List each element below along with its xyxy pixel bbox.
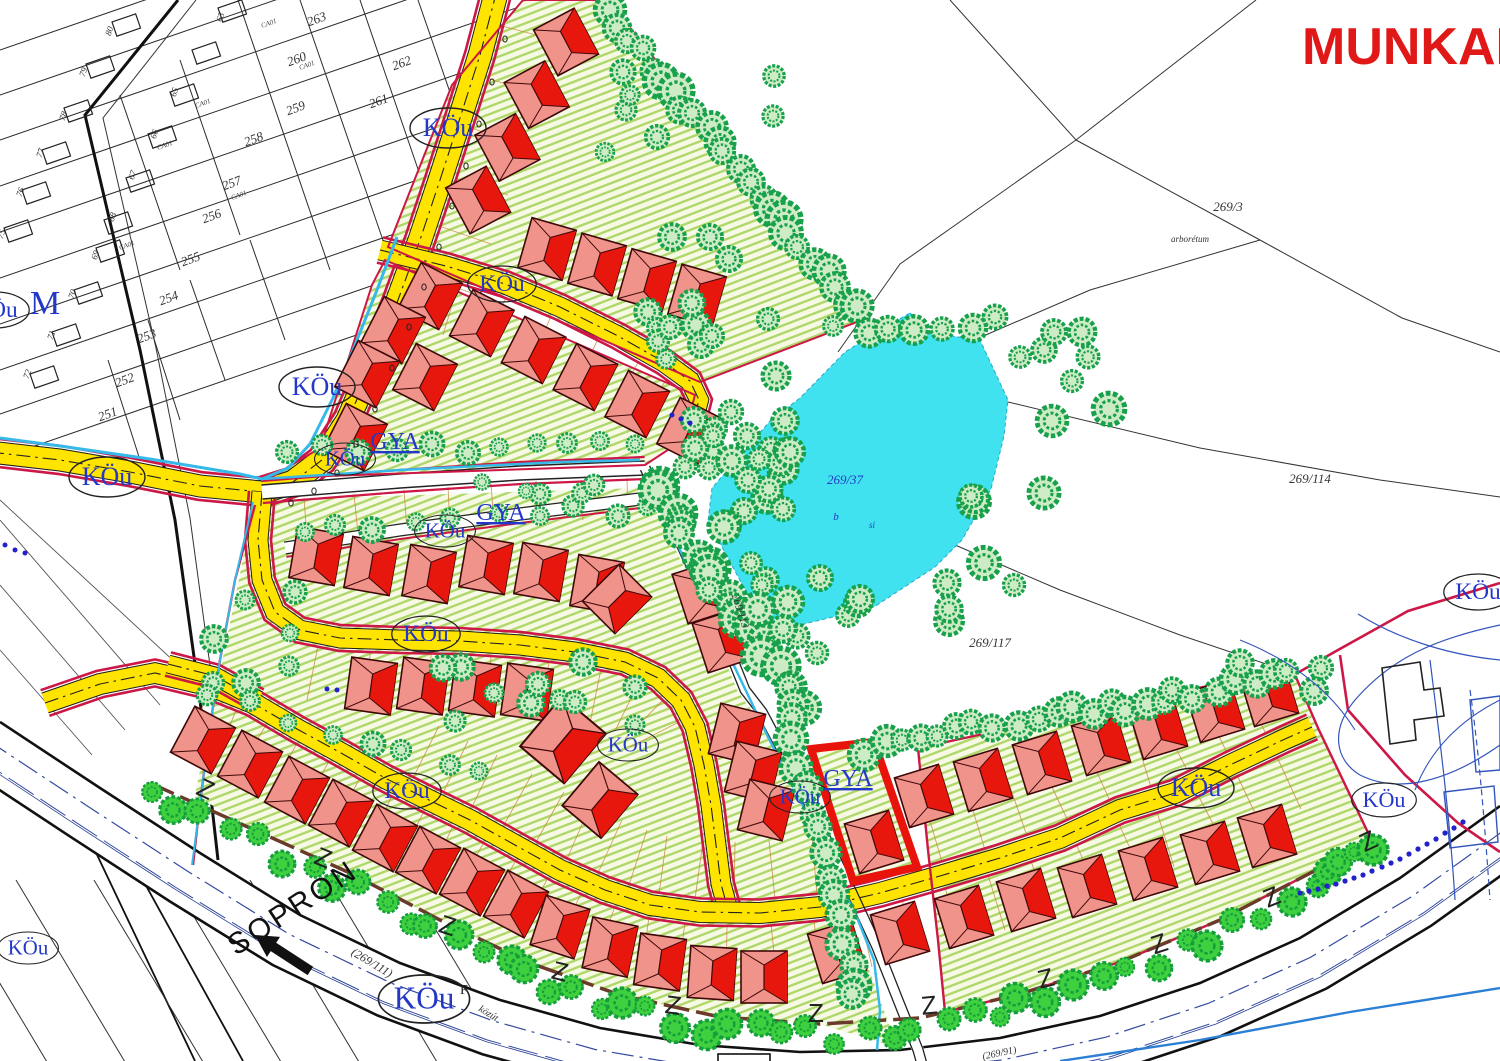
svg-text:Z: Z [920, 989, 939, 1021]
svg-text:KÖu: KÖu [0, 297, 18, 323]
svg-text:KÖu: KÖu [394, 981, 455, 1016]
svg-text:KÖu: KÖu [1363, 787, 1406, 812]
svg-text:Z: Z [808, 998, 824, 1028]
svg-text:KÖu: KÖu [1455, 579, 1500, 605]
svg-text:KÖu: KÖu [479, 271, 525, 297]
svg-text:KÖu: KÖu [403, 621, 449, 647]
svg-text:269/117: 269/117 [969, 635, 1011, 650]
svg-text:si: si [869, 520, 876, 530]
svg-text:b: b [833, 511, 839, 523]
svg-text:KÖu: KÖu [423, 113, 474, 142]
svg-text:KÖu: KÖu [1171, 773, 1222, 802]
svg-text:KÖu: KÖu [780, 785, 821, 808]
svg-text:GYA: GYA [370, 429, 420, 455]
svg-text:GYA: GYA [476, 500, 526, 526]
svg-text:KÖu: KÖu [8, 936, 49, 959]
svg-text:arborétum: arborétum [1171, 234, 1210, 244]
svg-text:KÖu: KÖu [325, 447, 366, 470]
svg-text:KÖu: KÖu [425, 519, 466, 542]
svg-text:F: F [460, 983, 468, 998]
svg-text:269/37: 269/37 [827, 472, 864, 487]
svg-text:269/3: 269/3 [1213, 199, 1243, 214]
svg-text:269/114: 269/114 [1289, 471, 1331, 486]
svg-text:KÖu: KÖu [608, 733, 649, 756]
svg-text:KÖu: KÖu [292, 372, 343, 401]
svg-text:M: M [30, 285, 60, 322]
svg-text:MUNKAK: MUNKAK [1302, 18, 1500, 76]
svg-text:KÖu: KÖu [82, 462, 133, 491]
svg-text:GYA: GYA [823, 766, 873, 792]
svg-text:KÖu: KÖu [384, 778, 430, 804]
